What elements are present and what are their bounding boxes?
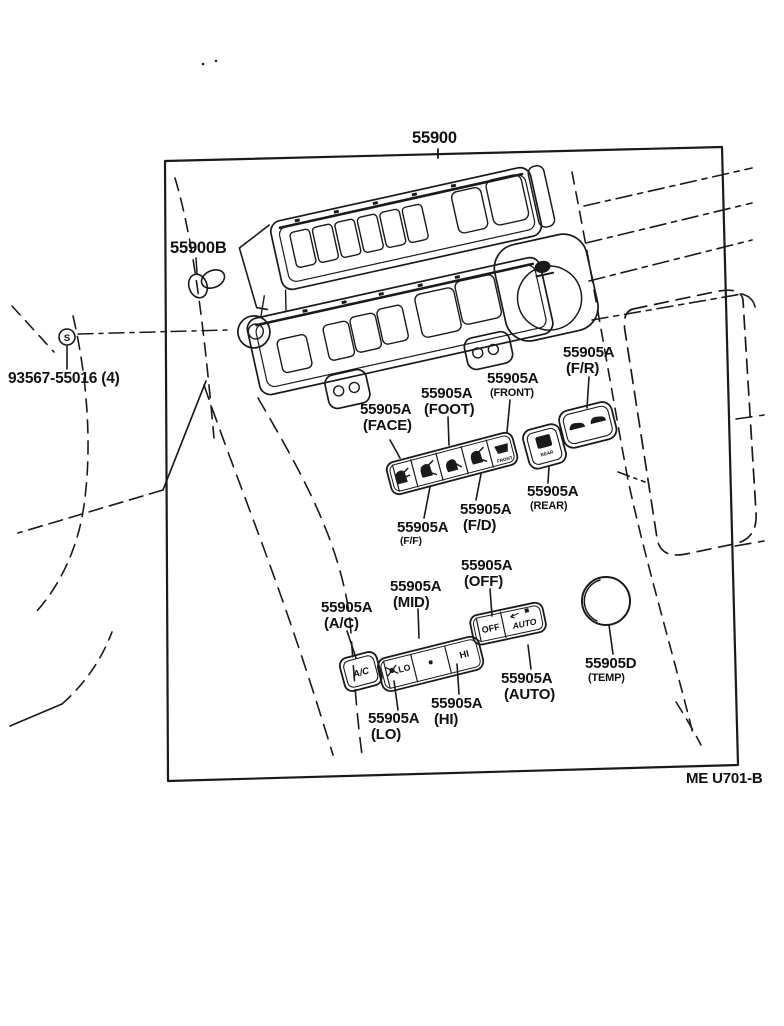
leader-fr bbox=[587, 377, 589, 408]
front-defrost-mode-icon bbox=[494, 443, 510, 454]
rear-defrost-icon bbox=[535, 434, 553, 449]
part-variant: (A/C) bbox=[324, 616, 372, 632]
fan-speed-strip: LO HI bbox=[376, 635, 485, 693]
part-variant: (HI) bbox=[434, 712, 482, 728]
screw-part-number: 93567-55016 (4) bbox=[8, 370, 120, 387]
leader-front bbox=[507, 400, 510, 432]
label-ac: 55905A (A/C) bbox=[321, 600, 372, 632]
label-front: 55905A (FRONT) bbox=[487, 371, 538, 399]
label-mid: 55905A (MID) bbox=[390, 579, 441, 611]
clip-part-label: 55900B bbox=[170, 240, 227, 256]
contour-bottom-left-solid bbox=[10, 704, 62, 726]
contour-arc-b bbox=[36, 316, 88, 612]
part-number: 55905A bbox=[527, 483, 578, 500]
screw-leader-dashed bbox=[78, 330, 228, 334]
auto-square-icon bbox=[524, 608, 529, 613]
diagram-line-art: S bbox=[0, 0, 784, 1026]
part-number: 55905A bbox=[431, 695, 482, 712]
trim-l2 bbox=[586, 203, 752, 243]
temp-knob bbox=[582, 577, 630, 625]
part-variant: (LO) bbox=[371, 727, 419, 743]
recirc-car-icon bbox=[568, 421, 585, 431]
edge-h bbox=[676, 702, 701, 745]
contour-dash-a bbox=[12, 306, 54, 352]
radio-opening-dashed bbox=[624, 290, 756, 555]
contour-bottom-left-dash bbox=[62, 632, 112, 704]
knob-pod-circle bbox=[511, 260, 587, 336]
clip-head bbox=[199, 266, 228, 291]
edge-g bbox=[572, 172, 694, 738]
part-number: 55905A bbox=[368, 710, 419, 727]
part-number: 55905A bbox=[501, 670, 552, 687]
mode-switch-strip: FRONT bbox=[385, 431, 519, 496]
label-auto: 55905A (AUTO) bbox=[501, 671, 555, 703]
interior-console-edges bbox=[175, 178, 362, 755]
leader-mid bbox=[418, 609, 419, 638]
ac-button: A/C bbox=[338, 650, 384, 693]
screw-callout: S bbox=[59, 329, 228, 369]
trim-dash-mid bbox=[618, 472, 645, 482]
label-face: 55905A (FACE) bbox=[360, 402, 412, 434]
label-lo: 55905A (LO) bbox=[368, 711, 419, 743]
drawing-code: ME U701-B bbox=[686, 770, 763, 787]
leader-temp bbox=[609, 625, 613, 654]
knob-shaft-bar bbox=[537, 273, 554, 277]
part-variant: (OFF) bbox=[464, 574, 512, 590]
parts-diagram-page: S bbox=[0, 0, 784, 1026]
label-hi: 55905A (HI) bbox=[431, 696, 482, 728]
leader-ac bbox=[347, 631, 356, 658]
lo-button-caption: LO bbox=[397, 662, 411, 675]
screw-symbol-letter: S bbox=[64, 333, 70, 344]
trim-l3 bbox=[589, 240, 752, 281]
part-number: 55905A bbox=[563, 344, 614, 361]
leader-lo bbox=[394, 681, 398, 710]
clip-leader bbox=[196, 258, 197, 273]
label-fr: 55905A (F/R) bbox=[563, 345, 614, 377]
part-variant: (MID) bbox=[393, 595, 441, 611]
part-number: 55905A bbox=[390, 578, 441, 595]
label-ff: 55905A (F/F) bbox=[397, 520, 448, 547]
part-variant: (AUTO) bbox=[504, 687, 555, 703]
front-button-caption: FRONT bbox=[496, 455, 513, 464]
clip-part-number: 55900B bbox=[170, 239, 227, 257]
rear-button-caption: REAR bbox=[540, 449, 555, 457]
knob-pod bbox=[490, 230, 603, 346]
drawing-code-text: ME U701-B bbox=[686, 770, 763, 787]
bilevel-mode-icon bbox=[419, 463, 433, 478]
leader-rear bbox=[548, 466, 549, 483]
left-console-contours bbox=[10, 306, 206, 726]
hi-button-caption: HI bbox=[458, 648, 470, 661]
contour-c-solid bbox=[163, 381, 206, 490]
leader-foot bbox=[448, 417, 449, 445]
off-auto-strip: OFF AUTO bbox=[469, 601, 548, 646]
part-number: 55905A bbox=[360, 401, 411, 418]
mid-dot-icon bbox=[428, 660, 433, 665]
part-variant: (F/R) bbox=[566, 361, 614, 377]
main-part-number: 55900 bbox=[412, 129, 457, 147]
part-variant: (FOOT) bbox=[424, 402, 474, 418]
leader-auto bbox=[528, 645, 531, 669]
label-fd: 55905A (F/D) bbox=[460, 502, 511, 534]
knob-shaft-hole bbox=[534, 259, 552, 274]
contour-c-dash bbox=[18, 490, 163, 533]
part-number: 55905A bbox=[487, 370, 538, 387]
rear-housing-inner bbox=[278, 174, 536, 283]
control-panel-assembly bbox=[216, 157, 608, 426]
fresh-air-car-icon bbox=[589, 414, 606, 424]
housing-depth-line2 bbox=[282, 290, 290, 310]
part-number: 55905A bbox=[421, 385, 472, 402]
label-foot: 55905A (FOOT) bbox=[421, 386, 474, 418]
foot-mode-icon bbox=[445, 458, 459, 472]
leader-ff bbox=[424, 487, 430, 518]
trim-l1 bbox=[584, 168, 752, 206]
part-variant: (FRONT) bbox=[490, 387, 538, 399]
label-rear: 55905A (REAR) bbox=[527, 484, 578, 512]
trim-l4 bbox=[592, 294, 742, 320]
part-number: 55905D bbox=[585, 655, 636, 672]
off-button-caption: OFF bbox=[481, 621, 501, 635]
temp-knob-circle bbox=[582, 577, 630, 625]
leader-face bbox=[390, 440, 400, 458]
part-number: 55905A bbox=[461, 557, 512, 574]
fan-icon-blades bbox=[386, 665, 398, 675]
auto-arrow-icon bbox=[510, 613, 519, 618]
screw-part-label: 93567-55016 (4) bbox=[8, 371, 120, 387]
part-variant: (FACE) bbox=[363, 418, 412, 434]
edge-f1 bbox=[204, 385, 333, 755]
label-temp: 55905D (TEMP) bbox=[585, 656, 636, 684]
foot-defrost-mode-icon bbox=[469, 450, 483, 465]
part-number: 55905A bbox=[460, 501, 511, 518]
front-bezel-screw-dots bbox=[302, 275, 460, 313]
main-part-label: 55900 bbox=[412, 130, 457, 146]
rear-housing-endcap bbox=[527, 164, 556, 228]
front-bezel-rail bbox=[256, 264, 532, 325]
part-variant: (F/F) bbox=[400, 536, 448, 547]
rear-housing-cutouts bbox=[288, 174, 530, 270]
fr-button-inner bbox=[562, 405, 614, 445]
part-variant: (REAR) bbox=[530, 500, 578, 512]
leader-fd bbox=[476, 474, 481, 500]
housing-depth-line1 bbox=[256, 296, 268, 317]
part-number: 55905A bbox=[397, 519, 448, 536]
off-auto-divider bbox=[500, 612, 505, 637]
leader-hi bbox=[457, 664, 459, 694]
part-variant: (F/D) bbox=[463, 518, 511, 534]
auto-button-caption: AUTO bbox=[511, 616, 538, 631]
part-number: 55905A bbox=[321, 599, 372, 616]
stray-dots bbox=[202, 60, 218, 66]
label-off: 55905A (OFF) bbox=[461, 558, 512, 590]
clip-drawing bbox=[186, 258, 228, 300]
rear-housing-screw-dots bbox=[295, 184, 457, 223]
part-variant: (TEMP) bbox=[588, 672, 636, 684]
clip-body bbox=[186, 272, 211, 300]
